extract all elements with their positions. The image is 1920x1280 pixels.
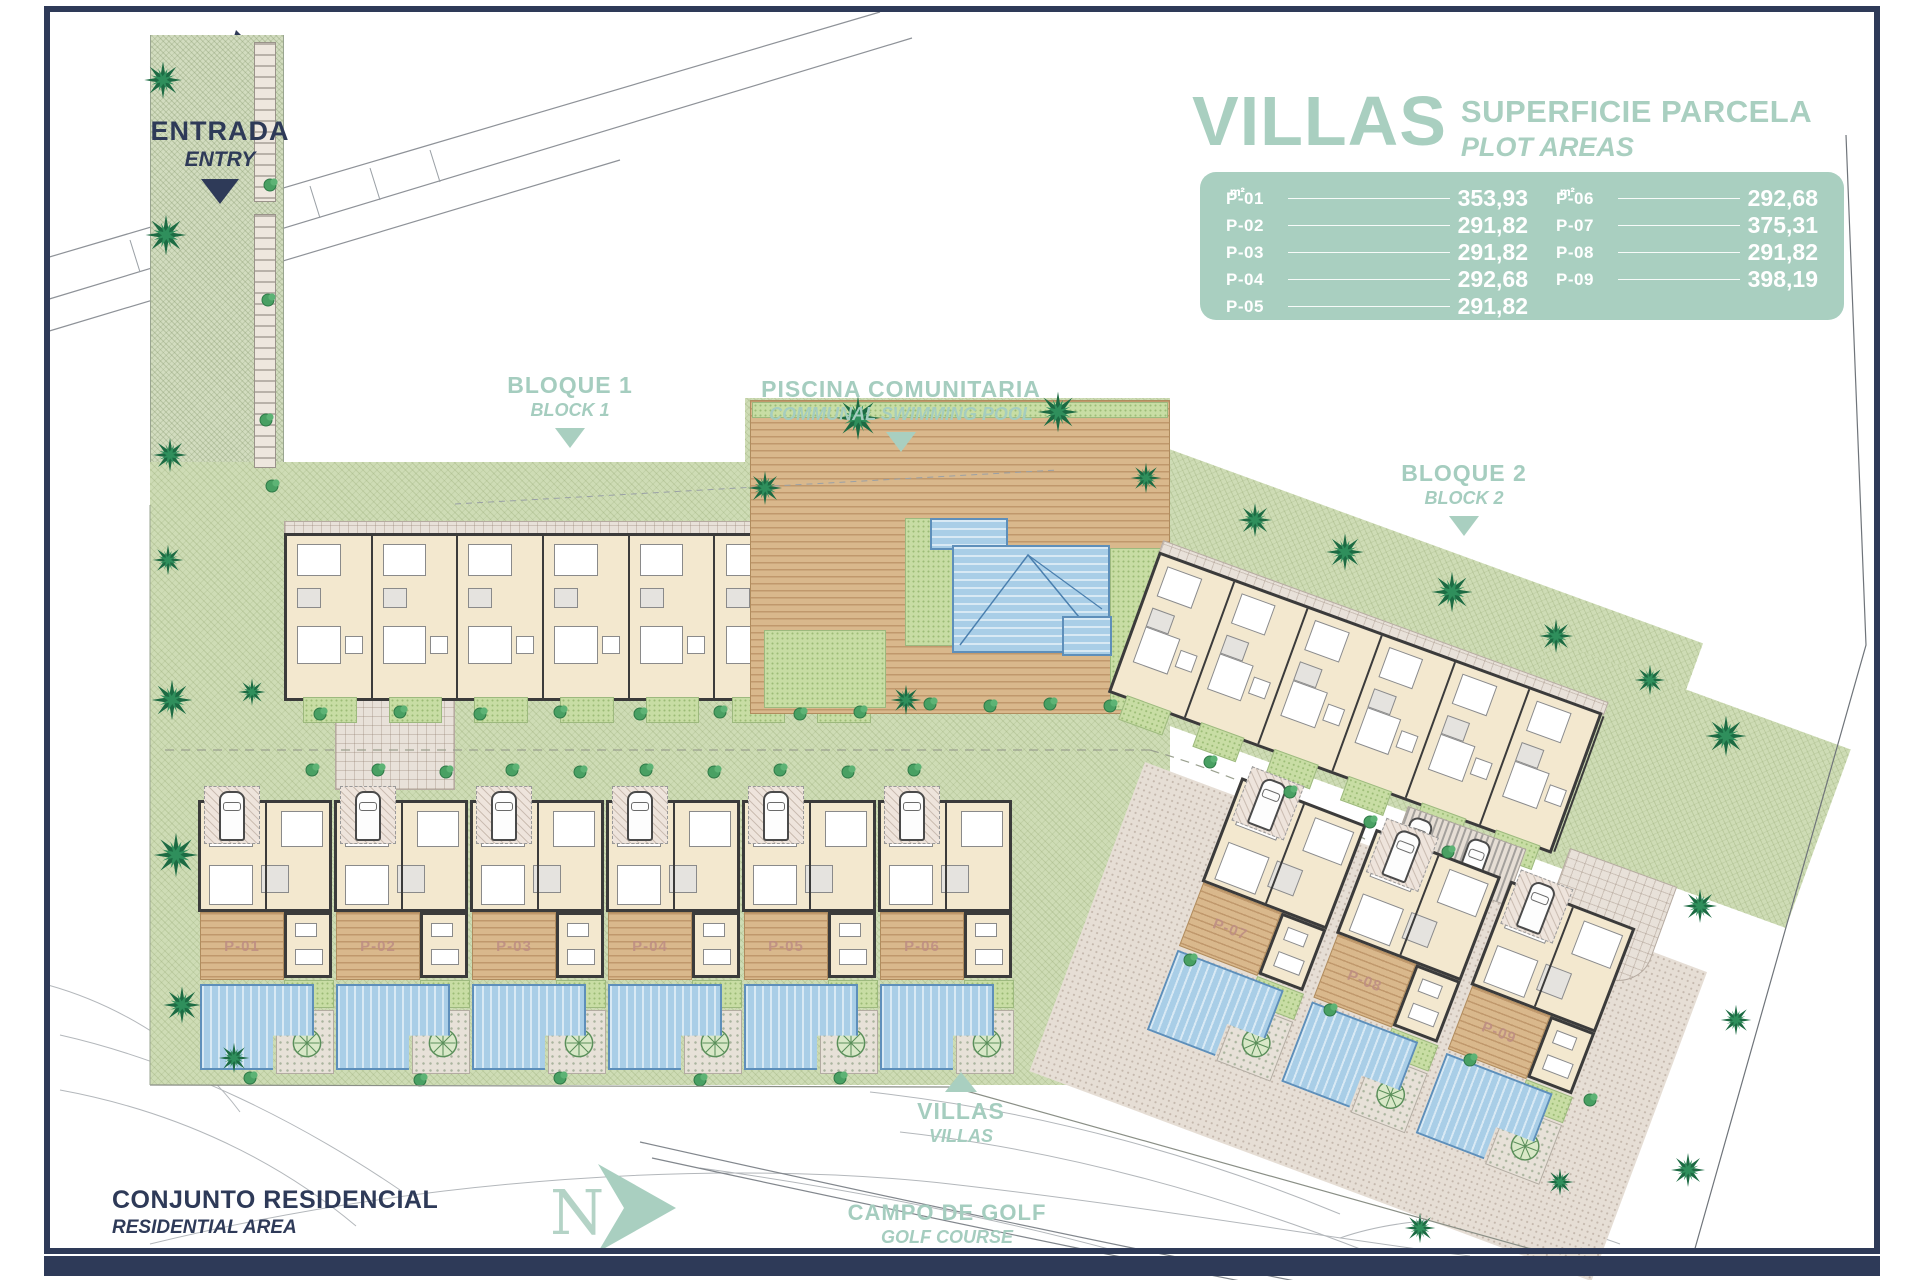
page-frame	[44, 6, 1880, 1254]
site-plan-page: P-01P-02P-03P-04P-05P-06 P-07P-08P-09 VI…	[0, 0, 1920, 1280]
page-footer-bar	[44, 1256, 1880, 1276]
